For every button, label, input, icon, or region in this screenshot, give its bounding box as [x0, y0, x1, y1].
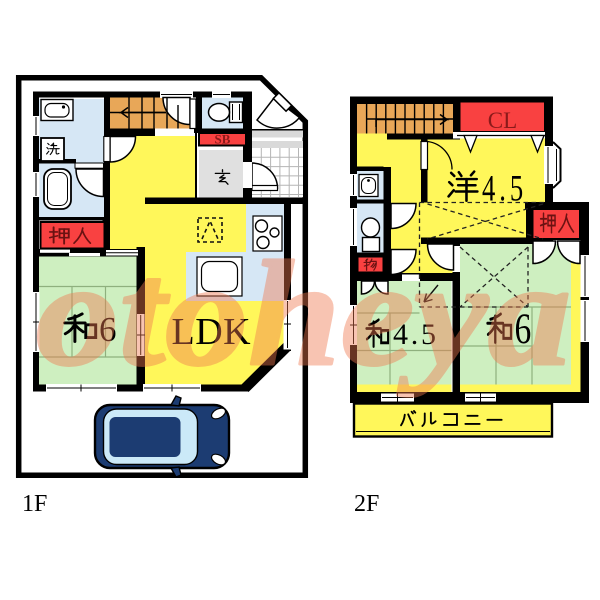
svg-text:CL: CL	[488, 108, 517, 133]
svg-text:1F: 1F	[22, 491, 47, 517]
svg-text:2F: 2F	[354, 491, 379, 517]
svg-text:otoheya: otoheya	[36, 231, 571, 397]
svg-text:SB: SB	[215, 132, 231, 147]
svg-text:4.5: 4.5	[482, 167, 527, 208]
